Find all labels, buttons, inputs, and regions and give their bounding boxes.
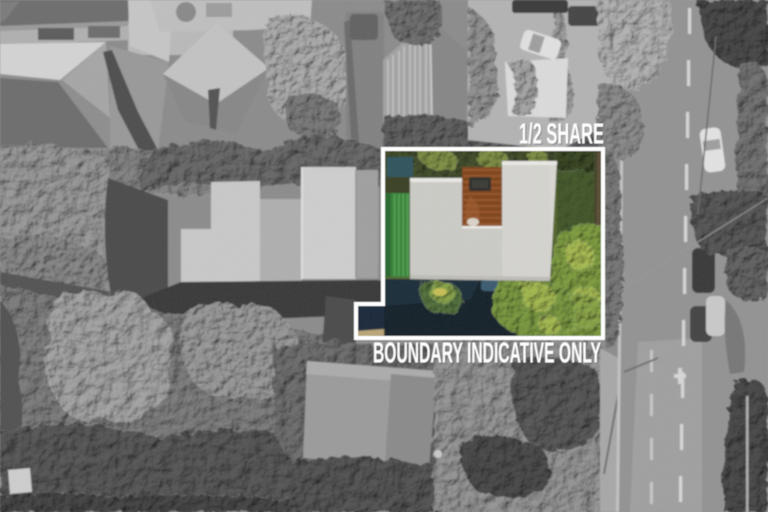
- svg-text:1/2 SHARE: 1/2 SHARE: [519, 119, 604, 151]
- svg-text:BOUNDARY INDICATIVE ONLY: BOUNDARY INDICATIVE ONLY: [373, 338, 601, 370]
